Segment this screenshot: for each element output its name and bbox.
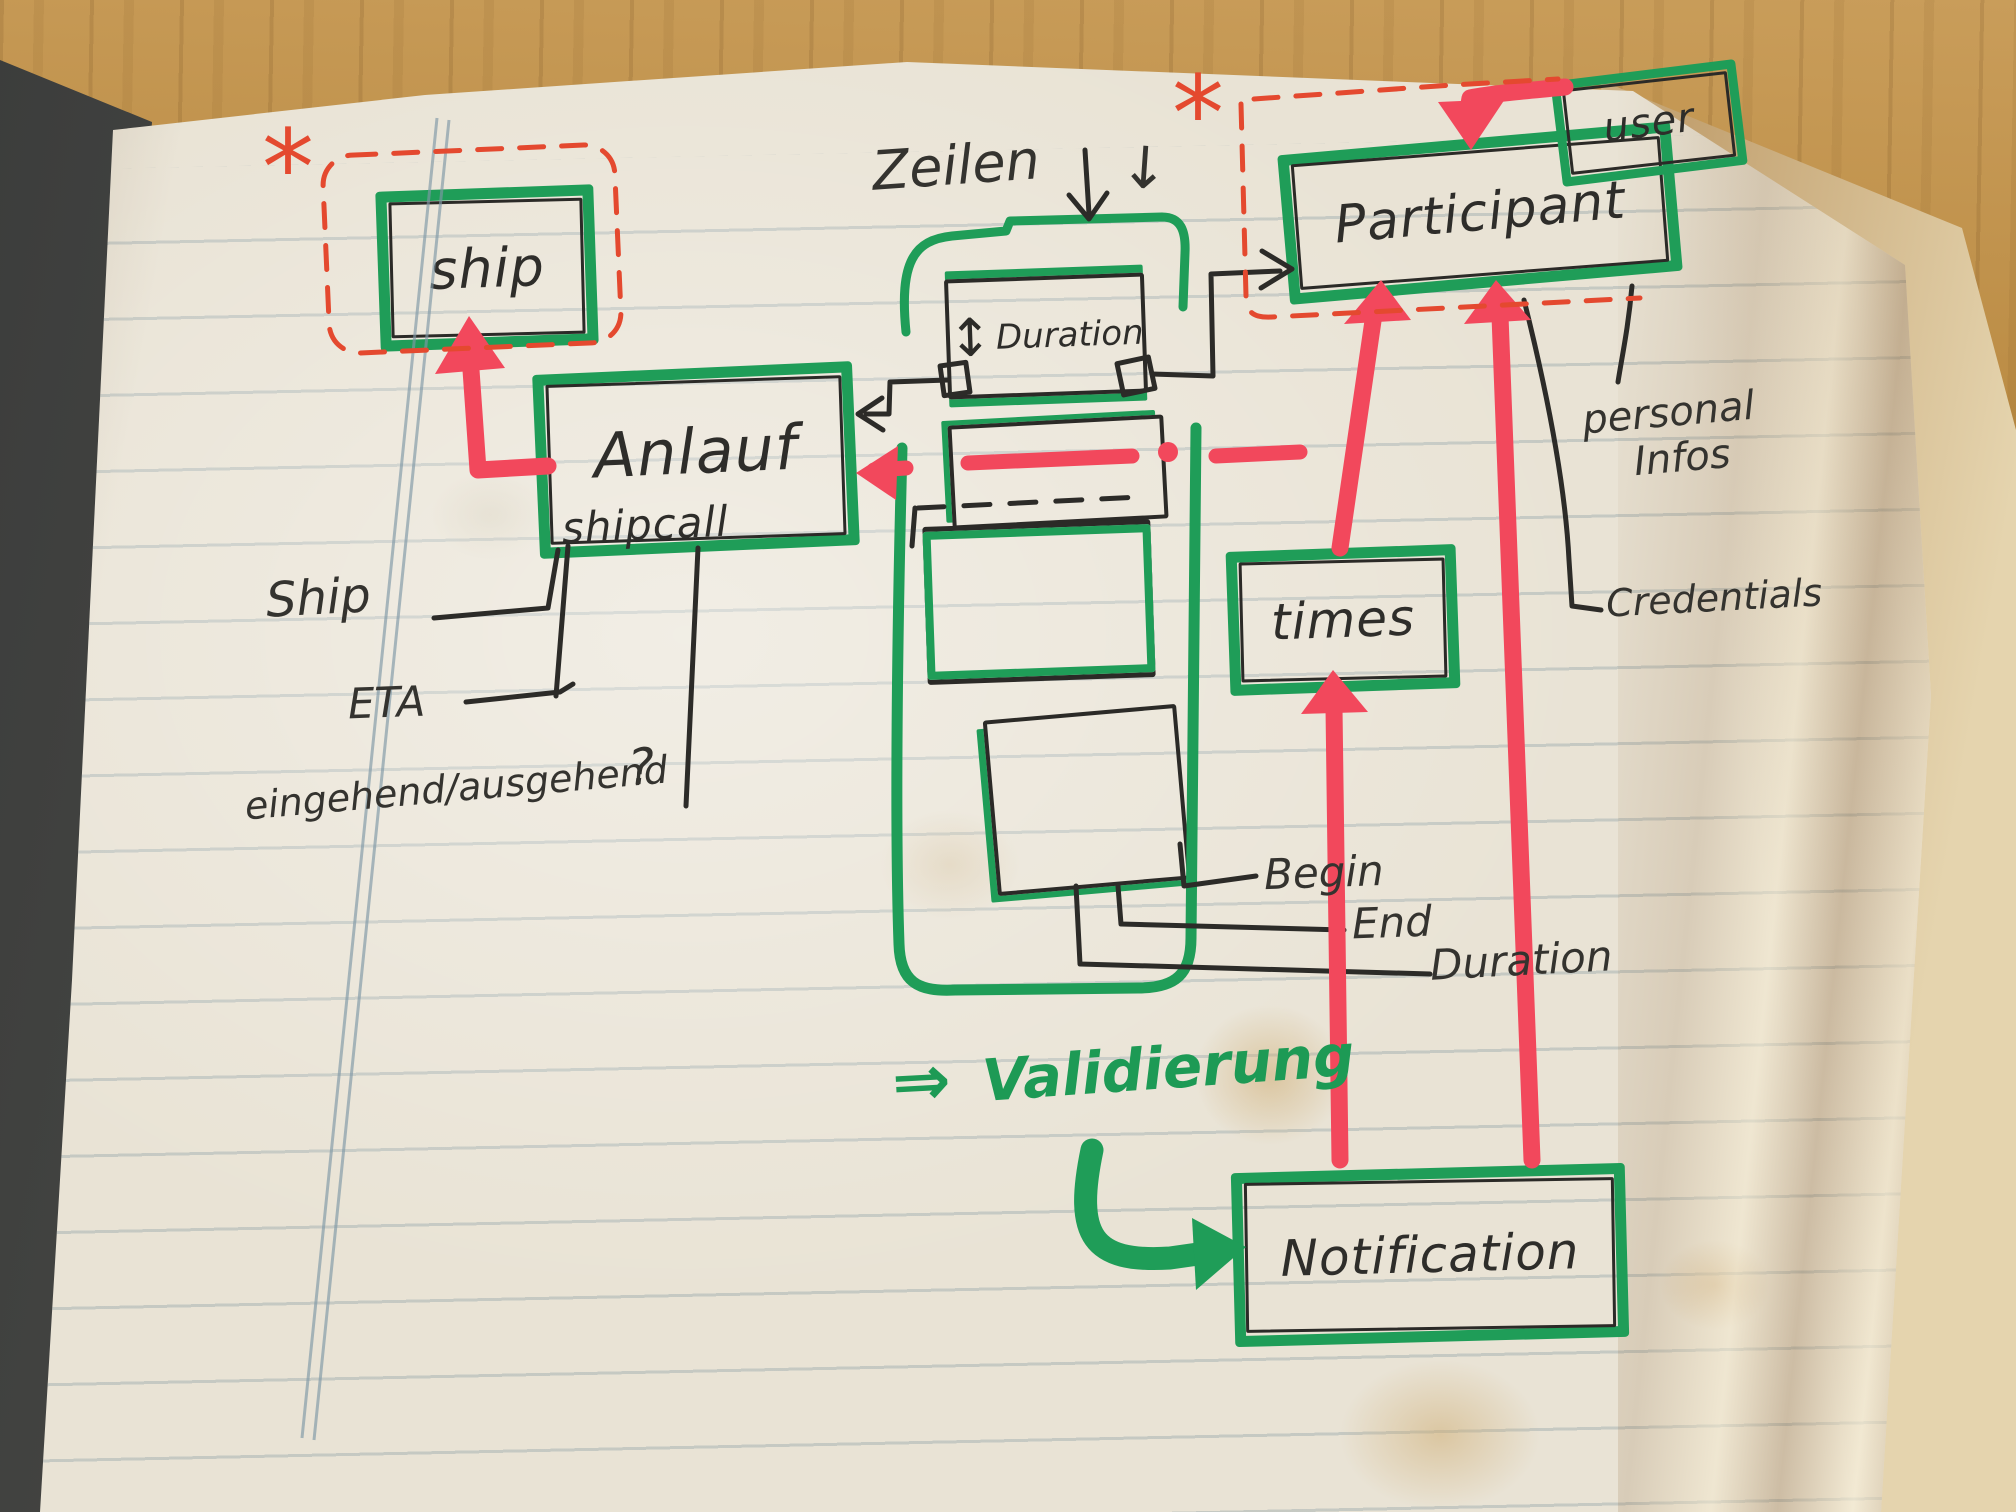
times-to-shipcall-arrowhead [856, 446, 898, 500]
validierung-arrow-icon: ⇒ [890, 1039, 953, 1124]
times-to-participant-arrow [1340, 314, 1374, 548]
notification-to-times-arrow [1334, 708, 1340, 1160]
ship-attr-label: Ship [265, 567, 372, 628]
dashed-divider-tick [912, 508, 915, 546]
zeilen-arrow: ↓ [1118, 132, 1171, 203]
green-bracket-over-duration [904, 217, 1185, 332]
asterisk-left: * [262, 116, 314, 220]
user-to-participant-arrowhead [1438, 99, 1505, 150]
eta-attr-label: ETA [347, 677, 426, 729]
zeilen-label: Zeilen [870, 128, 1042, 203]
zeilen-down-arrow-shaft [1085, 150, 1089, 214]
question-mark: ? [626, 737, 657, 797]
end-attr-label: End [1351, 897, 1432, 949]
green-container-outline [897, 428, 1196, 990]
times-to-shipcall-dashed-arrow [874, 452, 1300, 470]
duration-attr-label: Duration [1429, 931, 1614, 989]
begin-attr-label: Begin [1263, 846, 1384, 899]
times-to-participant-arrowhead [1344, 280, 1411, 324]
ship-attr-connector [434, 550, 558, 618]
notification-to-participant-arrow [1500, 316, 1532, 1160]
notification-to-times-arrowhead [1301, 670, 1368, 714]
black-pen-strokes [434, 150, 1632, 974]
participant-dashed-outline-left-bottom [1241, 104, 1640, 317]
duration-connector-square-right [1117, 357, 1155, 395]
shipcall-attr-stem-1 [556, 546, 568, 696]
personal-infos-label: personal Infos [1580, 383, 1760, 490]
green-curved-arrowhead [1192, 1218, 1246, 1290]
red-dash-dot [1158, 442, 1178, 462]
asterisk-right: * [1172, 62, 1224, 166]
red-marker-arrows [435, 87, 1565, 1160]
duration-to-shipcall-line [866, 380, 948, 414]
personal-infos-line2: Infos [1632, 431, 1732, 485]
red-pen-dashed [322, 79, 1640, 354]
shipcall-attr-stem-2 [686, 548, 698, 806]
dashed-divider-line [918, 497, 1140, 508]
notebook-photo: ship Anlauf shipcall ↕ Duration Particip… [0, 0, 2016, 1512]
green-curved-arrow [1086, 1150, 1198, 1259]
shipcall-to-ship-arrow [471, 370, 548, 470]
